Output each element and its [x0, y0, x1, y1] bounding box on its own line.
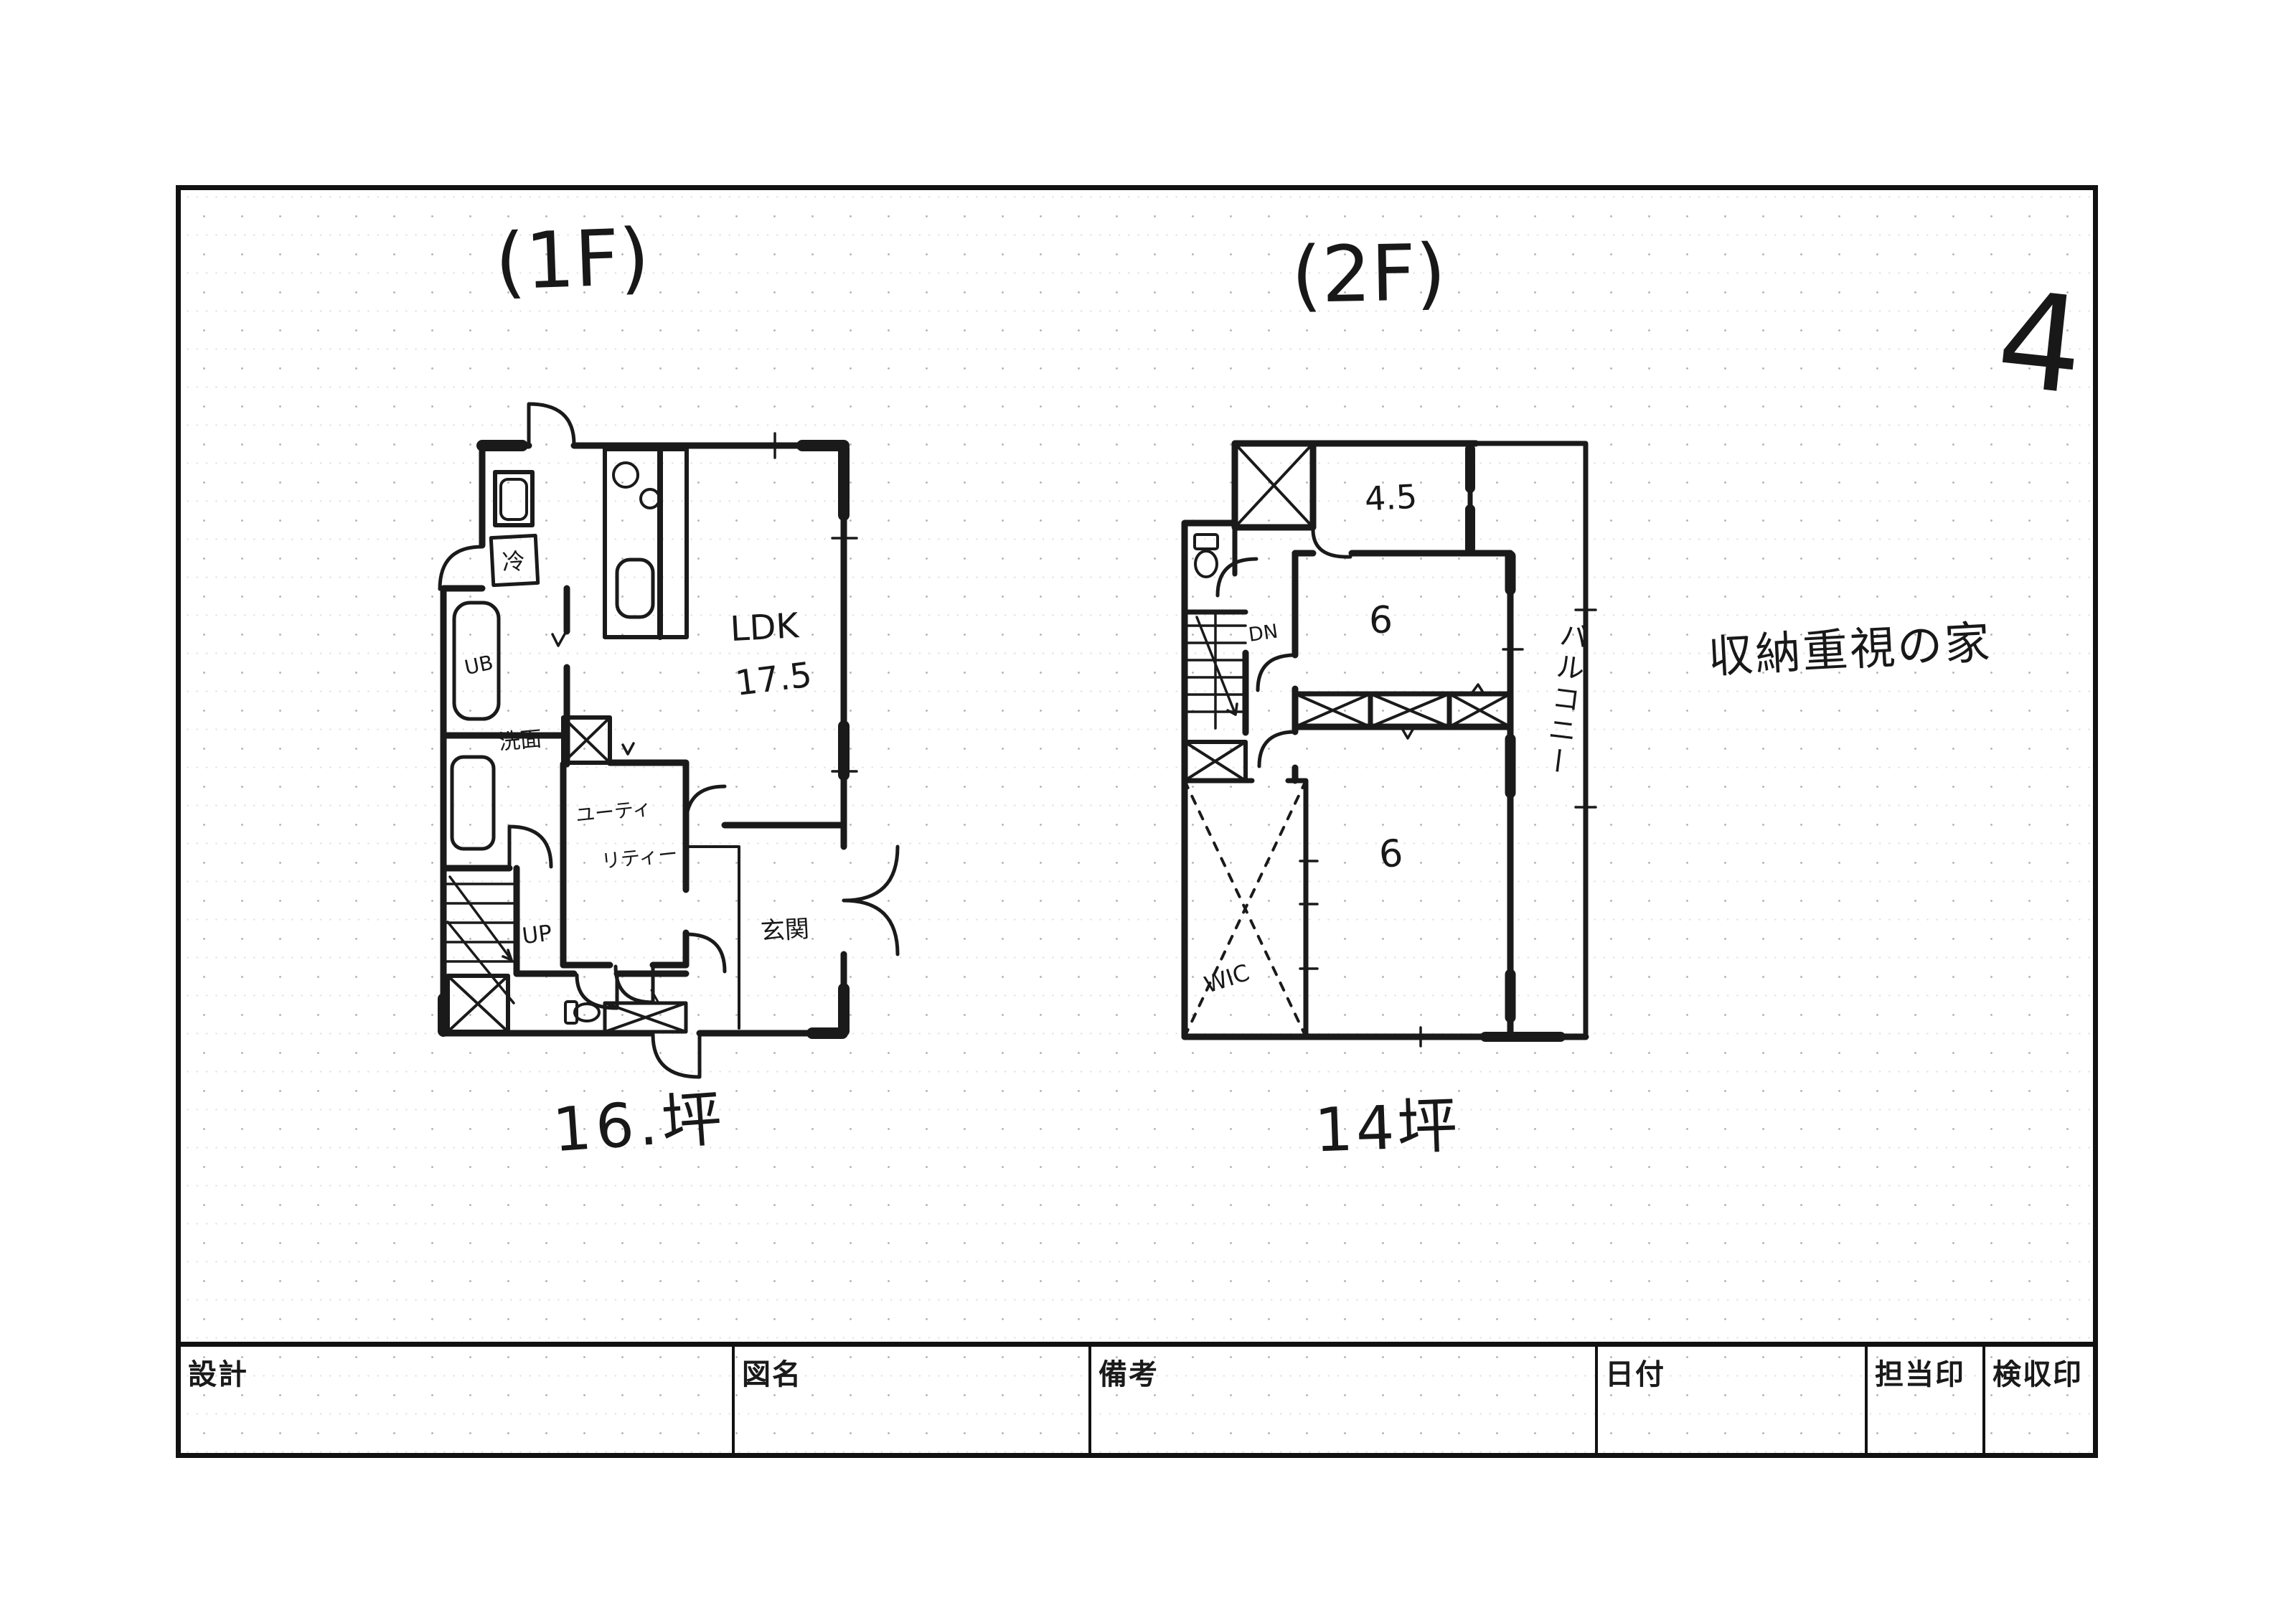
stairs-1f — [443, 877, 517, 1003]
label-room-45: 4.5 — [1364, 477, 1418, 519]
stairs-2f — [1185, 612, 1246, 728]
closet-x-2f — [1185, 742, 1246, 781]
label-utility-1: ユーティ — [575, 797, 653, 827]
label-room-6-mid: 6 — [1369, 599, 1393, 642]
label-washroom: 洗面 — [498, 726, 543, 755]
washbasin-icon — [452, 757, 494, 849]
label-ldk: LDK — [729, 606, 801, 649]
label-unit-bath: UB — [463, 651, 496, 680]
toilet-icon — [565, 1002, 599, 1023]
title-block-cell-staff-seal: 担当印 — [1868, 1347, 1985, 1453]
appliance-counter — [495, 472, 532, 525]
title-block-cell-remarks: 備考 — [1091, 1347, 1598, 1453]
toilet-icon-2f — [1195, 535, 1218, 577]
kitchen-counter — [605, 449, 687, 637]
scanned-floorplan-sheet: { "annotations": { "page_number": "4", "… — [0, 0, 2296, 1623]
closet-x-bottom-left — [448, 976, 508, 1032]
door-arcs-2f — [1218, 530, 1350, 766]
label-utility-2: リティー — [601, 843, 679, 873]
title-block-cell-date: 日付 — [1598, 1347, 1868, 1453]
floor-plan-1f: LDK 17.5 冷 UB 洗面 ユーティ リティー UP 玄関 — [373, 387, 947, 1091]
label-wic: WIC — [1201, 959, 1253, 999]
label-ldk-size: 17.5 — [733, 654, 814, 704]
floor2-area: 14坪 — [1313, 1077, 1462, 1169]
label-fridge: 冷 — [502, 547, 527, 576]
floor1-title: (1F) — [494, 212, 651, 307]
label-room-6-low: 6 — [1378, 832, 1405, 877]
title-block-cell-drawing-name: 図名 — [735, 1347, 1091, 1453]
entrance-step — [686, 847, 739, 1028]
burner-icon — [613, 463, 638, 487]
closet-x-small — [563, 718, 610, 763]
page-number: 4 — [1990, 261, 2091, 424]
floor2-title: (2F) — [1291, 228, 1446, 321]
label-dn: DN — [1247, 621, 1279, 646]
burner-icon — [641, 489, 659, 508]
floor-plan-2f: 4.5 6 6 DN WIC — [1141, 402, 1629, 1076]
title-block: 設計 図名 備考 日付 担当印 検収印 — [181, 1342, 2093, 1453]
title-block-cell-inspection-seal: 検収印 — [1985, 1347, 2093, 1453]
label-entrance: 玄関 — [760, 915, 810, 946]
label-up: UP — [521, 921, 553, 950]
sink-icon — [617, 560, 653, 617]
title-block-cell-design: 設計 — [181, 1347, 735, 1453]
